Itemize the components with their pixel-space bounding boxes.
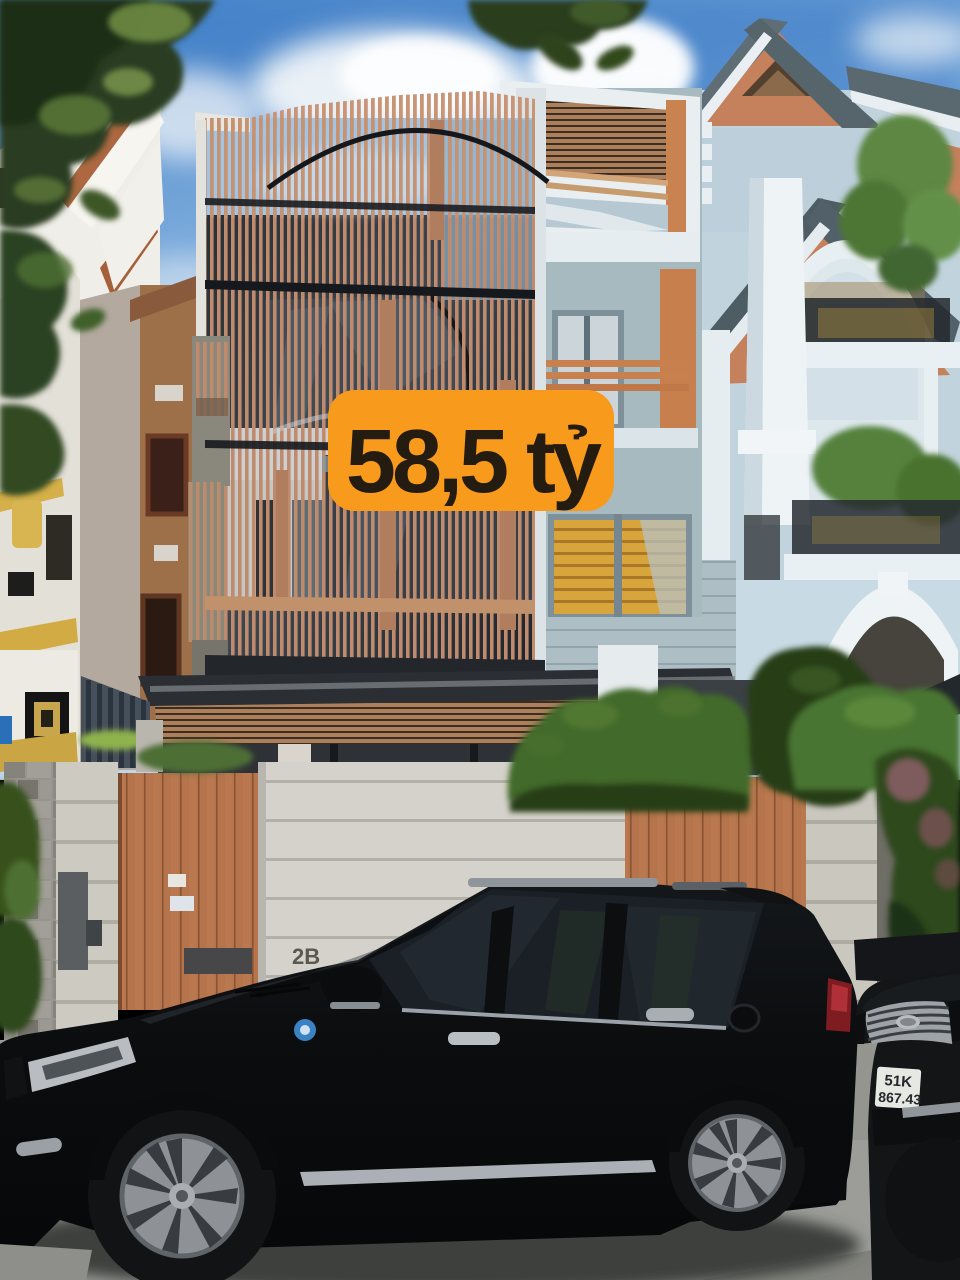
svg-text:867.43: 867.43 (878, 1089, 922, 1108)
svg-text:58,5 tỷ: 58,5 tỷ (346, 412, 602, 512)
svg-text:2B: 2B (292, 944, 320, 969)
svg-text:51K: 51K (884, 1072, 913, 1091)
